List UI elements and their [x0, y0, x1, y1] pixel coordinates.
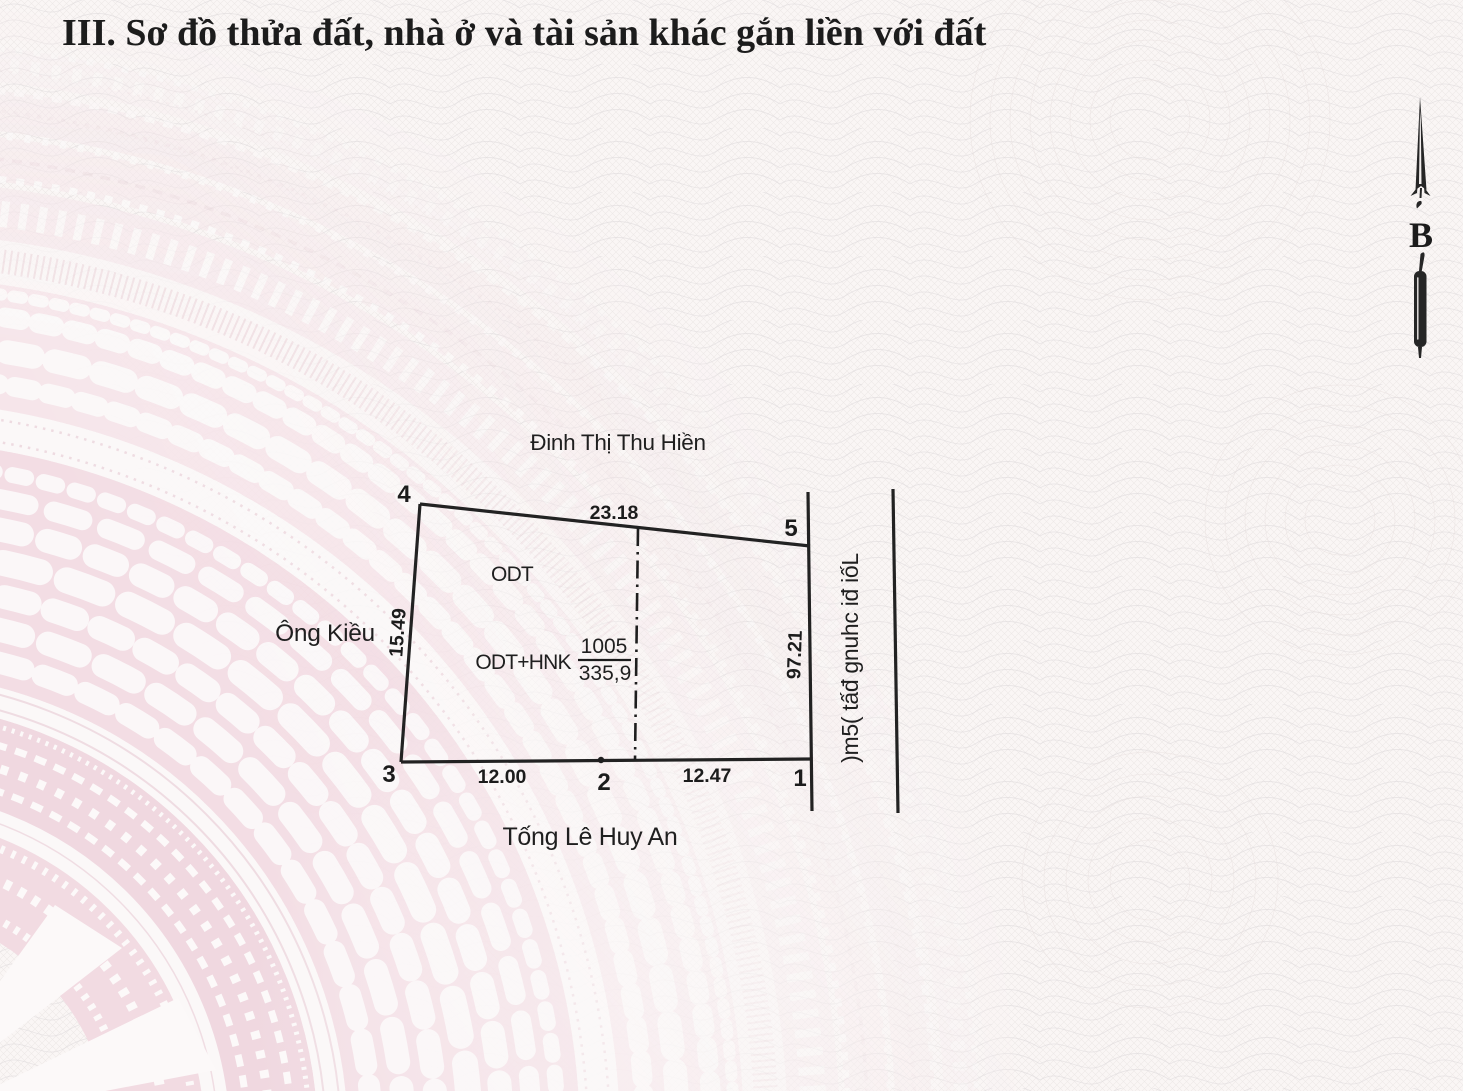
svg-text:23.18: 23.18 — [590, 502, 639, 524]
svg-text:5: 5 — [784, 515, 797, 542]
svg-text:B: B — [1409, 215, 1433, 255]
svg-text:15.49: 15.49 — [385, 607, 410, 657]
svg-text:ODT+HNK: ODT+HNK — [475, 651, 571, 674]
svg-text:Ông Kiều: Ông Kiều — [275, 619, 375, 647]
svg-text:Đinh Thị Thu Hiền: Đinh Thị Thu Hiền — [530, 430, 705, 455]
svg-text:1005: 1005 — [581, 635, 628, 658]
svg-text:)m5( tấđ gnuhc iđ iốL: )m5( tấđ gnuhc iđ iốL — [837, 553, 863, 763]
svg-text:97.21: 97.21 — [783, 630, 807, 680]
svg-text:3: 3 — [382, 761, 395, 788]
svg-text:III. Sơ đồ thửa đất, nhà ở và: III. Sơ đồ thửa đất, nhà ở và tài sản kh… — [62, 12, 987, 54]
svg-text:1: 1 — [793, 765, 806, 792]
svg-text:12.47: 12.47 — [683, 765, 732, 787]
svg-text:12.00: 12.00 — [478, 766, 527, 788]
svg-text:335,9: 335,9 — [579, 662, 632, 685]
svg-text:4: 4 — [397, 481, 411, 508]
svg-text:2: 2 — [597, 769, 610, 796]
svg-text:ODT: ODT — [491, 563, 534, 586]
svg-text:Tống Lê Huy An: Tống Lê Huy An — [502, 823, 677, 851]
